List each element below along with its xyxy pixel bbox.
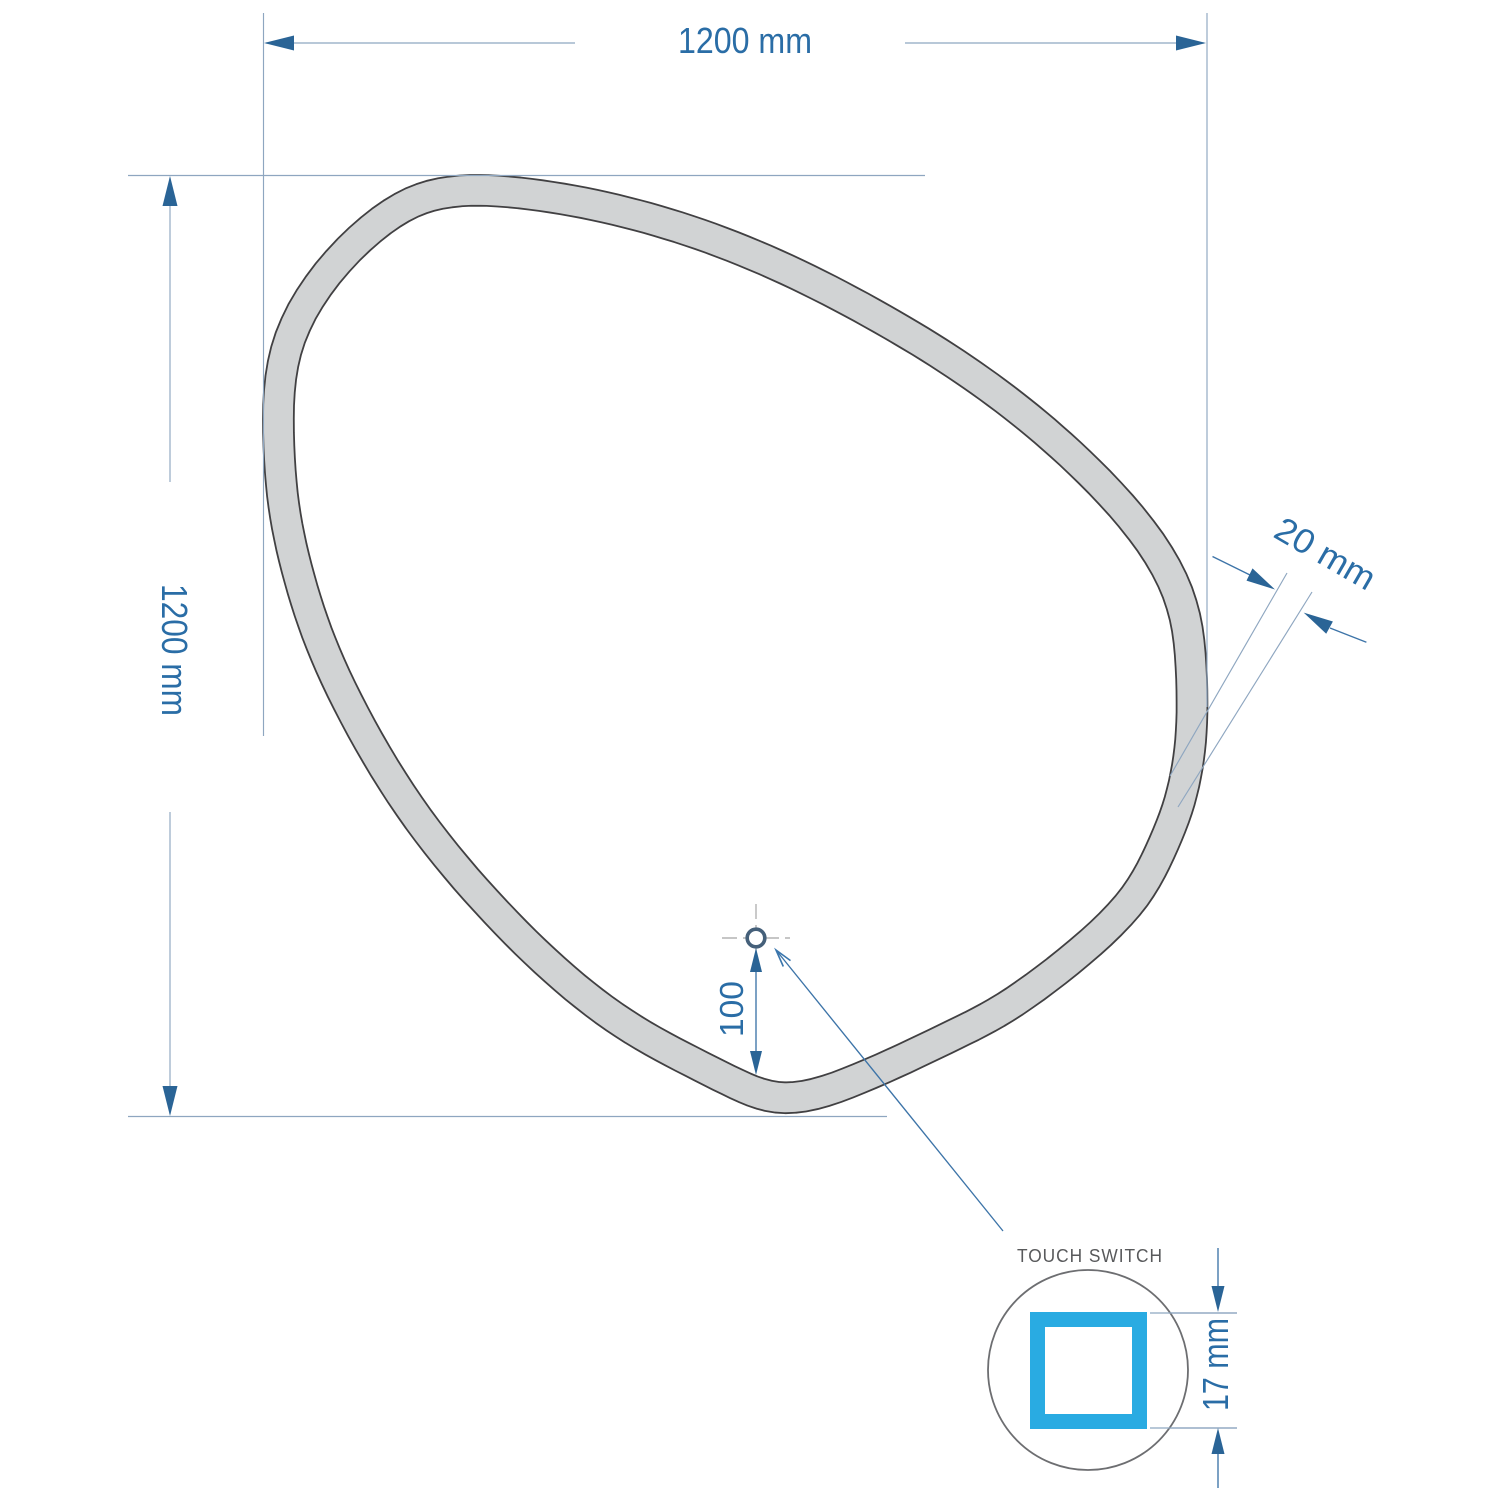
svg-text:1200 mm: 1200 mm — [154, 584, 195, 716]
svg-text:17 mm: 17 mm — [1195, 1318, 1236, 1411]
svg-text:100: 100 — [714, 981, 751, 1037]
svg-text:1200 mm: 1200 mm — [678, 20, 812, 61]
svg-text:TOUCH SWITCH: TOUCH SWITCH — [1017, 1246, 1163, 1266]
